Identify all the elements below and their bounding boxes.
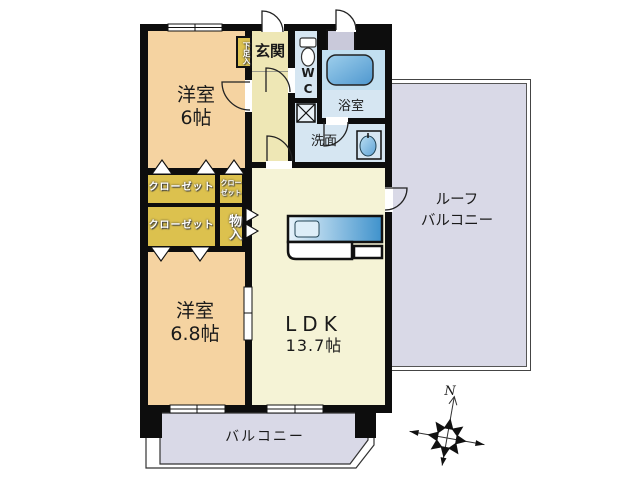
- balcony-wall-stub-right: [355, 412, 376, 438]
- shoe-box-label: 下足入: [238, 39, 251, 67]
- utility-box: [326, 29, 356, 52]
- ldk-room: [252, 168, 385, 405]
- room-west2-label: 洋室6.8帖: [146, 300, 244, 346]
- compass-north-label: N: [440, 384, 460, 400]
- entrance-step-line: [252, 71, 288, 72]
- roof-balcony-label: ルーフバルコニー: [398, 190, 516, 232]
- compass-icon: [405, 390, 492, 472]
- room-west1-label: 洋室6帖: [148, 84, 244, 130]
- pipe-space-strip: [295, 103, 317, 162]
- washroom-label: 洗面: [299, 134, 349, 150]
- entrance-label: 玄関: [250, 42, 290, 60]
- closet-bottom-label: クローゼット: [148, 220, 215, 232]
- bath-label: 浴室: [326, 99, 376, 115]
- storage-label: 物入: [222, 209, 241, 245]
- wc-label: WC: [297, 62, 315, 102]
- closet-small-label: クローゼット: [219, 179, 243, 199]
- balcony-label: バルコニー: [198, 429, 332, 446]
- floor-plan: 洋室6帖 玄関 WC 浴室 洗面 下足入 クローゼット クローゼット クローゼッ…: [0, 0, 640, 480]
- closet-top-label: クローゼット: [148, 182, 215, 194]
- balcony-wall-stub-left: [140, 412, 162, 438]
- ldk-label: LDK 13.7帖: [250, 312, 378, 355]
